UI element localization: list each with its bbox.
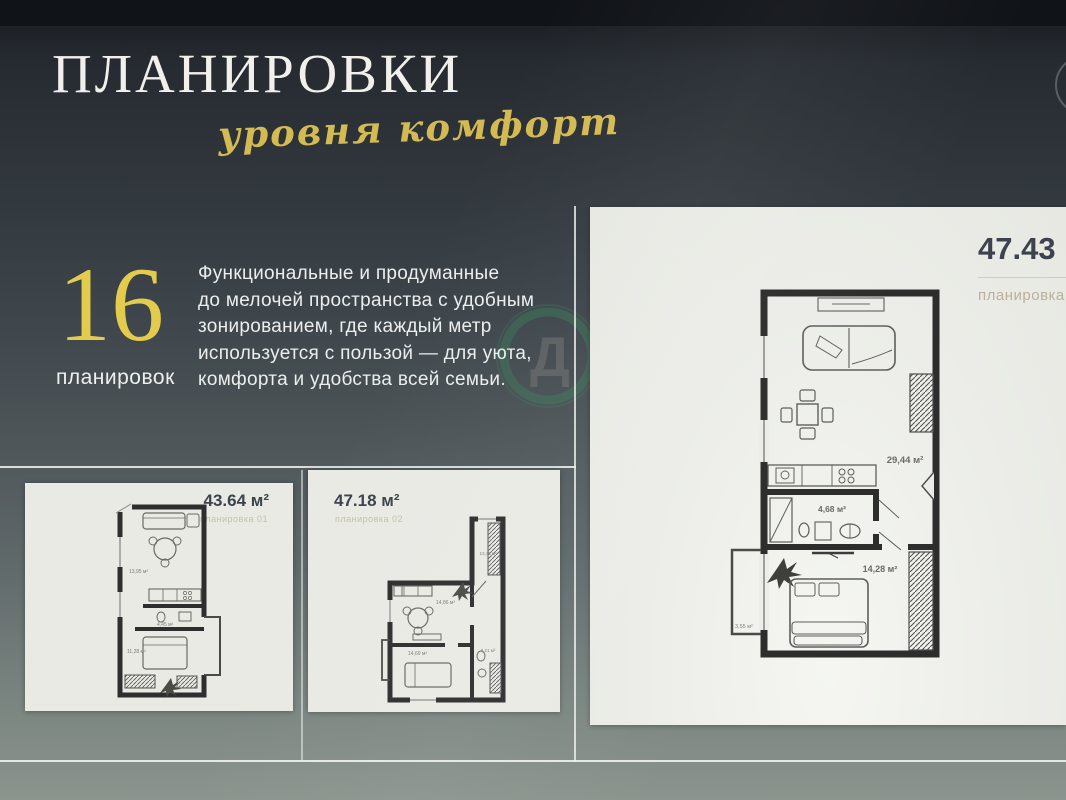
- stove-icon: [839, 469, 845, 475]
- layout-grid-line-horizontal: [0, 466, 576, 468]
- toilet-icon: [799, 523, 809, 537]
- plant-icon: [767, 558, 802, 589]
- room-area-label: 14,86 м²: [436, 600, 455, 606]
- card-plan-label: планировка 03: [978, 287, 1066, 304]
- card-title-divider: [978, 277, 1066, 278]
- card-area-title: 47.18 м²: [334, 491, 400, 511]
- room-area-label: 14,69 м²: [408, 651, 427, 657]
- bed-icon: [405, 663, 451, 687]
- brochure-page: ПЛАНИРОВКИ уровня комфорт Д 16 планирово…: [0, 0, 1066, 800]
- description-line: используется с пользой — для уюта,: [198, 341, 543, 368]
- table-icon: [797, 404, 818, 425]
- wardrobe-icon: [909, 552, 933, 650]
- page-title: ПЛАНИРОВКИ: [52, 42, 462, 105]
- description-line: Функциональные и продуманные: [198, 261, 543, 288]
- sink-icon: [776, 468, 794, 483]
- stat-label: планировок: [56, 366, 175, 390]
- room-area-label: 14,28 м²: [863, 564, 898, 574]
- floorplan-drawing-01: 13,95 м² 4,45 м² 11,28 м²: [113, 497, 238, 707]
- description-paragraph: Функциональные и продуманные до мелочей …: [198, 261, 543, 394]
- page-top-edge: [0, 0, 1066, 26]
- card-area-title: 47.43 м²: [978, 231, 1066, 267]
- room-area-label: 11,28 м²: [127, 649, 146, 655]
- layout-grid-line-vertical-mid: [301, 470, 303, 761]
- wardrobe-icon: [910, 374, 933, 432]
- floorplan-card-01: 43.64 м² планировка 01: [25, 483, 293, 711]
- washer-icon: [815, 522, 831, 540]
- room-area-label: 13,32 м²: [479, 551, 497, 556]
- bed-icon: [143, 637, 187, 669]
- kitchen-counter-icon: [394, 586, 432, 596]
- floorplan-drawing-03: 3,55 м² 29,44 м²: [720, 282, 945, 667]
- corner-circle-decoration: [1055, 55, 1066, 115]
- layout-grid-line-bottom: [0, 760, 1066, 762]
- layout-grid-line-vertical: [574, 206, 576, 762]
- room-area-label: 29,44 м²: [887, 455, 924, 466]
- sofa-icon: [143, 513, 185, 529]
- pillow-icon: [795, 583, 815, 596]
- wardrobe-icon: [490, 663, 501, 693]
- wardrobe-icon: [125, 675, 155, 688]
- room-area-label: 3,21 м²: [481, 648, 496, 653]
- description-line: зонированием, где каждый метр: [198, 314, 543, 341]
- sink-icon: [478, 669, 486, 677]
- room-area-label: 3,55 м²: [735, 624, 753, 630]
- page-subtitle-script: уровня комфорт: [217, 99, 621, 157]
- floorplan-drawing-02: 13,32 м² 14,86 м² 14,69 м²: [380, 515, 530, 705]
- toilet-icon: [157, 612, 165, 622]
- room-area-label: 13,95 м²: [129, 569, 148, 575]
- floorplan-card-02: 47.18 м² планировка 02 13,32 м²: [308, 470, 560, 712]
- pillow-icon: [819, 583, 839, 596]
- description-line: комфорта и удобства всей семьи.: [198, 367, 543, 394]
- wardrobe-icon: [488, 523, 500, 575]
- wardrobe-icon: [177, 676, 197, 688]
- kitchen-counter-icon: [149, 589, 201, 601]
- description-line: до мелочей пространства с удобным: [198, 288, 543, 315]
- cushion-icon: [816, 336, 842, 358]
- stat-number: 16: [58, 252, 164, 358]
- sink-icon: [179, 612, 191, 621]
- bed-icon: [790, 579, 868, 647]
- floorplan-card-03: 47.43 м² планировка 03 3,55 м²: [590, 207, 1066, 725]
- plan-balcony: [732, 550, 761, 634]
- room-area-label: 4,68 м²: [818, 504, 846, 514]
